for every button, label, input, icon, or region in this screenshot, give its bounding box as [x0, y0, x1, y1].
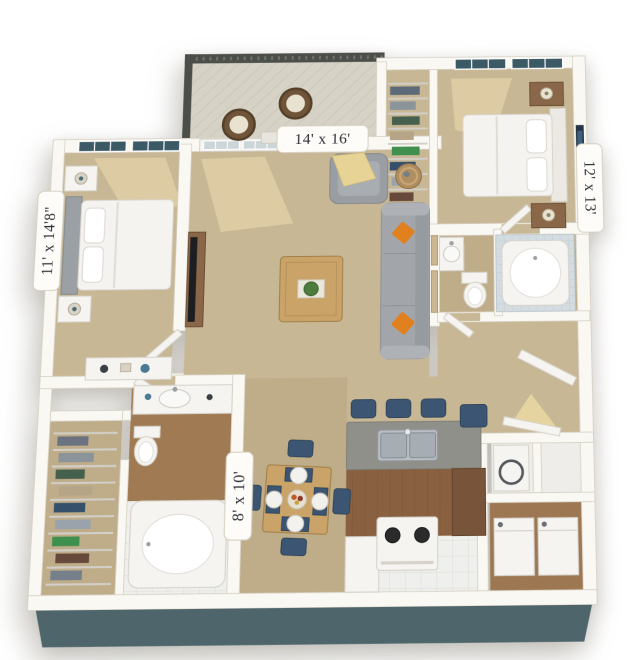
dining-chair [288, 440, 314, 458]
wall-bottom-face [34, 605, 593, 648]
clothes [59, 486, 93, 496]
floor-plan: 14' x 16' 12' x 13' 11' x 14'8" 8' x 10' [6, 35, 623, 654]
balcony-railing-slats [189, 57, 383, 59]
pillow [527, 158, 547, 192]
armchair [330, 152, 388, 203]
pillow [526, 120, 546, 153]
wall-cubby-bottom [481, 492, 595, 503]
toilet-tank [134, 426, 160, 438]
sofa-armrest [380, 345, 429, 359]
cubby-right-floor [541, 442, 581, 492]
bar-stool [386, 399, 411, 418]
burner [385, 528, 400, 543]
clothes [57, 436, 88, 446]
toilet-seat [138, 442, 153, 463]
kitchen-cabinet [452, 468, 486, 535]
plant [304, 282, 318, 296]
clothes [55, 519, 91, 529]
toilet-tank [462, 272, 487, 283]
floor-plan-stage: 14' x 16' 12' x 13' 11' x 14'8" 8' x 10' [0, 0, 640, 640]
sofa-armrest [381, 203, 429, 216]
sofa [380, 203, 429, 359]
clothes [55, 553, 89, 563]
clothes [390, 101, 416, 110]
wall-closet-top-edge [50, 410, 131, 421]
dresser-item [120, 364, 131, 372]
wall-frame [431, 236, 437, 265]
clothes [392, 146, 420, 155]
oven-handle [381, 562, 434, 563]
burner [415, 527, 430, 542]
plate [286, 515, 304, 533]
wall-utility-top [481, 432, 594, 443]
pillow [84, 208, 106, 243]
clothes [390, 192, 414, 201]
clothes [392, 116, 420, 125]
clothes [54, 503, 86, 513]
faucet [405, 429, 411, 435]
double-sink [378, 428, 438, 461]
clothes [58, 453, 94, 463]
bar-stool [421, 399, 446, 418]
kitchen-lower-counter [345, 536, 379, 592]
dining-chair [280, 538, 306, 556]
dining-chair [333, 488, 351, 514]
bed-blanket-fold [497, 116, 498, 194]
clothes [55, 469, 85, 479]
toilet-seat [468, 287, 482, 305]
stove [377, 517, 438, 571]
wall-cubby-divider [533, 443, 542, 493]
pillow [82, 247, 104, 283]
sofa-back-cushions [415, 207, 428, 355]
sink [444, 246, 460, 262]
plate [290, 467, 308, 484]
label-living-room: 14' x 16' [294, 131, 350, 148]
wall-closet-bedroom-right [429, 69, 437, 228]
bathtub-basin [510, 248, 561, 298]
bin [460, 404, 487, 427]
plate [311, 493, 329, 510]
coffee-table [279, 256, 343, 322]
label-dining: 8' x 10' [230, 471, 249, 522]
label-bedroom-left: 11' x 14'8" [39, 206, 60, 275]
clothes [50, 570, 82, 580]
floor-plan-3d-wrapper: 14' x 16' 12' x 13' 11' x 14'8" 8' x 10' [6, 35, 623, 654]
bar-stool [351, 399, 376, 418]
sink [159, 389, 190, 408]
clothes [390, 131, 414, 140]
clothes [390, 86, 420, 95]
wall-closet-divider-a [122, 410, 131, 420]
wall-frame [431, 271, 437, 313]
clothes [52, 536, 80, 546]
label-bedroom-right: 12' x 13' [580, 161, 598, 215]
